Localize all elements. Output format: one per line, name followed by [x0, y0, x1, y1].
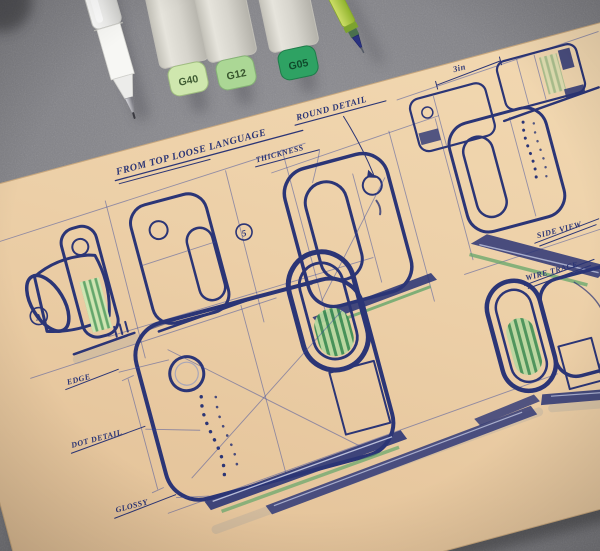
- scene-svg: FROM TOP LOOSE LANGUAGE ROUND DETAIL THI…: [0, 0, 600, 551]
- vignette: [0, 0, 600, 551]
- photo-scene: FROM TOP LOOSE LANGUAGE ROUND DETAIL THI…: [0, 0, 600, 551]
